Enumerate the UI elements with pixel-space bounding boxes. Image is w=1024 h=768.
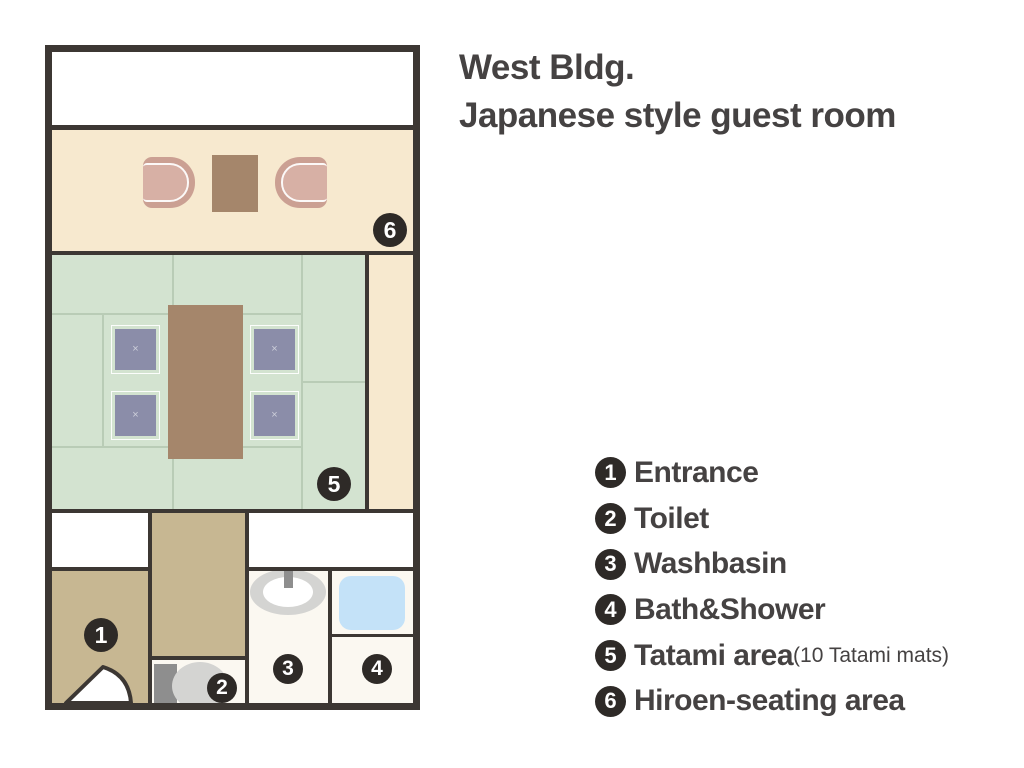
armchair-icon — [143, 157, 195, 208]
bathtub — [339, 576, 405, 630]
armchair-icon — [275, 157, 327, 208]
wall — [332, 634, 413, 637]
legend-number-badge: 6 — [595, 686, 626, 717]
hallway-area — [249, 513, 413, 567]
legend-note: (10 Tatami mats) — [793, 644, 949, 668]
zabuton-cushion: × — [250, 325, 299, 374]
title-line-2: Japanese style guest room — [459, 92, 896, 140]
armchair-cushion — [143, 163, 189, 202]
zabuton-center-mark: × — [254, 395, 295, 436]
closet-area — [52, 513, 148, 567]
marker-tatami: 5 — [317, 467, 351, 501]
legend-item: 1 Entrance — [595, 450, 949, 496]
hiroen-side-strip — [369, 255, 413, 509]
zabuton-cushion: × — [250, 391, 299, 440]
zabuton-center-mark: × — [254, 329, 295, 370]
legend-item: 4 Bath&Shower — [595, 587, 949, 633]
tatami-mat-line — [102, 313, 104, 448]
legend-number-badge: 3 — [595, 549, 626, 580]
marker-bath: 4 — [362, 654, 392, 684]
zabuton-center-mark: × — [115, 329, 156, 370]
marker-entrance: 1 — [84, 618, 118, 652]
armchair-cushion — [281, 163, 327, 202]
marker-hiroen: 6 — [373, 213, 407, 247]
marker-washbasin: 3 — [273, 654, 303, 684]
door-swing-icon — [52, 647, 148, 703]
legend-item: 2 Toilet — [595, 496, 949, 542]
legend-label: Bath&Shower — [634, 593, 825, 627]
low-table — [168, 305, 243, 459]
side-table — [212, 155, 258, 212]
legend-item: 3 Washbasin — [595, 541, 949, 587]
legend-item: 6 Hiroen-seating area — [595, 678, 949, 724]
tatami-mat-line — [301, 381, 365, 383]
legend: 1 Entrance 2 Toilet 3 Washbasin 4 Bath&S… — [595, 450, 949, 724]
legend-label: Entrance — [634, 456, 758, 490]
balcony-area — [52, 52, 413, 125]
zabuton-cushion: × — [111, 325, 160, 374]
legend-number-badge: 4 — [595, 594, 626, 625]
title-line-1: West Bldg. — [459, 44, 896, 92]
faucet-icon — [284, 571, 293, 588]
zabuton-cushion: × — [111, 391, 160, 440]
legend-label: Hiroen-seating area — [634, 684, 905, 718]
page: 6 × × × × 5 1 — [0, 0, 1024, 768]
zabuton-center-mark: × — [115, 395, 156, 436]
legend-label: Toilet — [634, 502, 709, 536]
legend-number-badge: 5 — [595, 640, 626, 671]
legend-item: 5 Tatami area (10 Tatami mats) — [595, 633, 949, 679]
corridor-area — [152, 513, 245, 656]
floor-plan: 6 × × × × 5 1 — [45, 45, 420, 710]
legend-number-badge: 2 — [595, 503, 626, 534]
legend-label: Tatami area — [634, 639, 793, 673]
legend-number-badge: 1 — [595, 457, 626, 488]
page-title: West Bldg. Japanese style guest room — [459, 44, 896, 140]
marker-toilet: 2 — [207, 673, 237, 703]
legend-label: Washbasin — [634, 547, 787, 581]
